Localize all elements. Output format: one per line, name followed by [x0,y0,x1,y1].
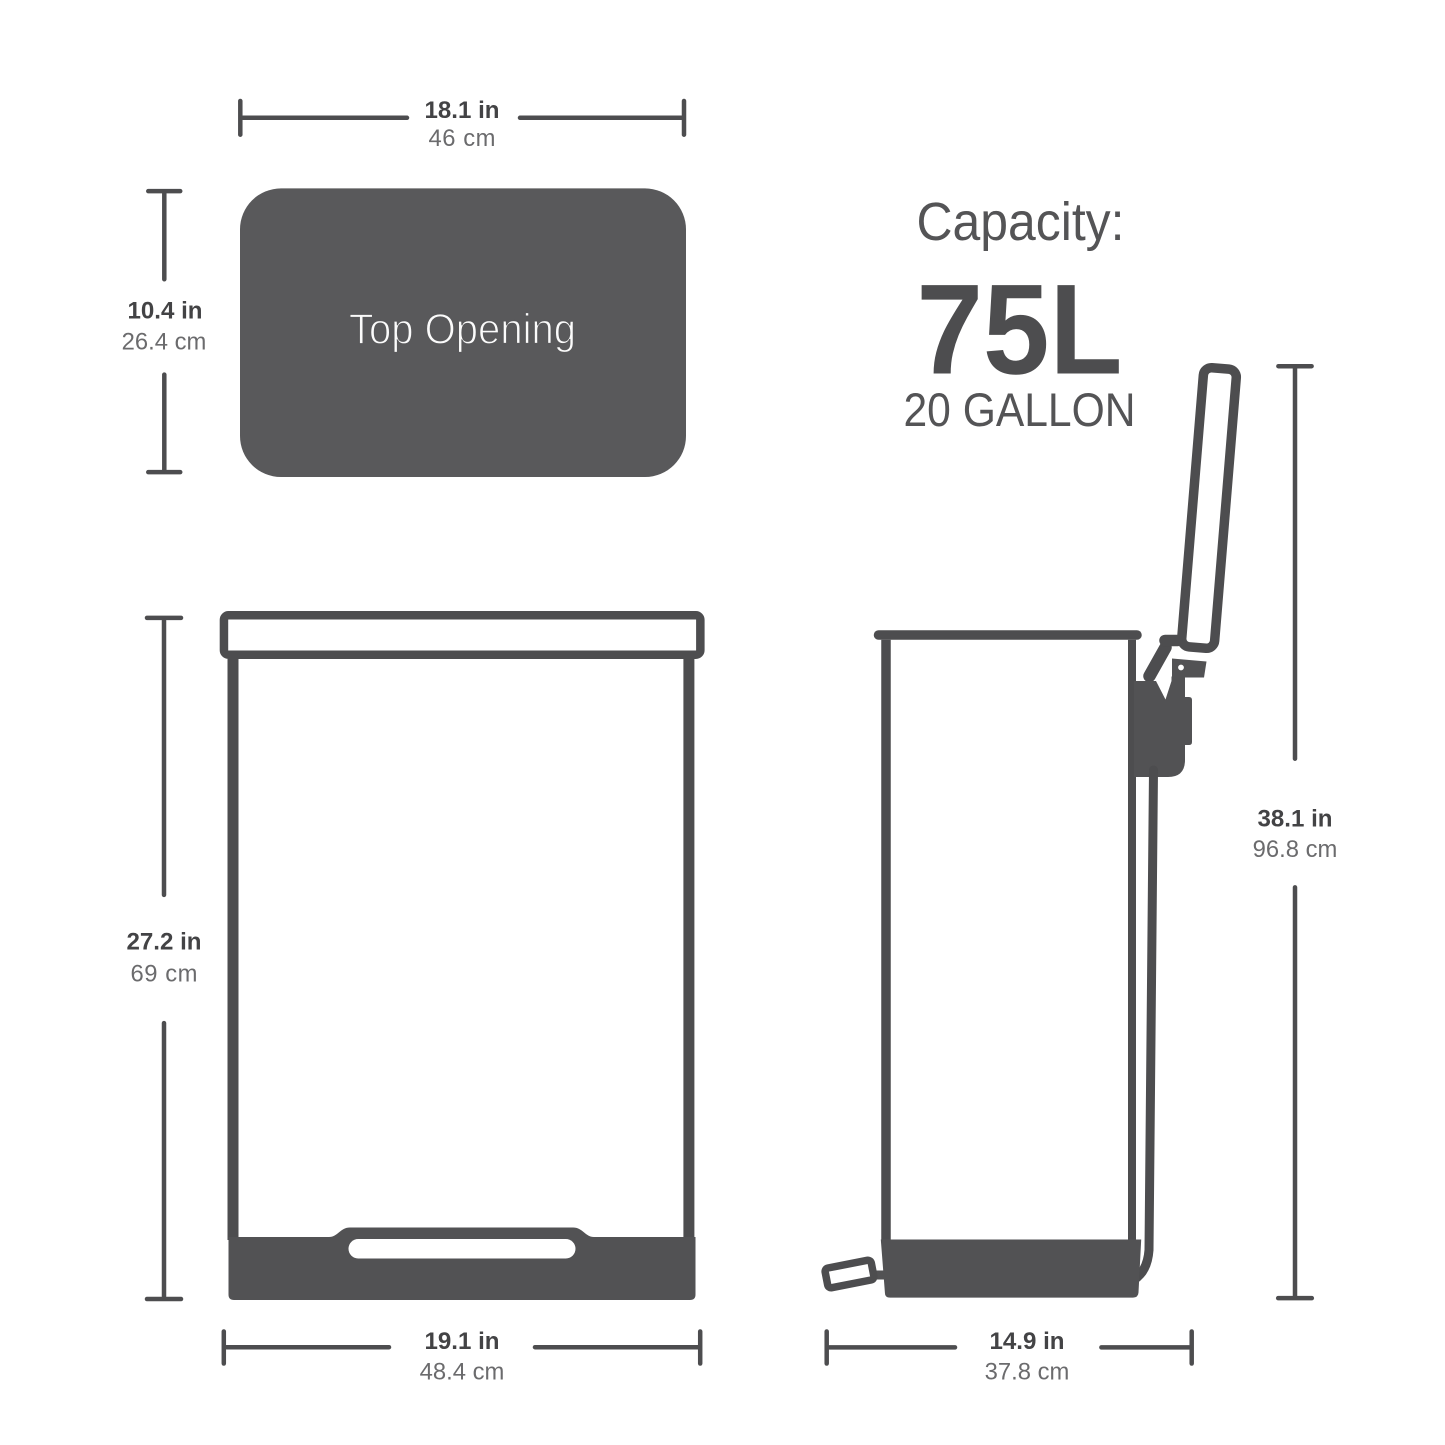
svg-text:19.1 in: 19.1 in [425,1328,500,1355]
svg-text:Top Opening: Top Opening [349,307,576,354]
svg-text:Capacity:: Capacity: [917,192,1125,252]
svg-text:27.2 in: 27.2 in [127,929,202,956]
svg-text:46 cm: 46 cm [429,125,496,152]
svg-text:38.1 in: 38.1 in [1258,806,1333,833]
svg-text:75L: 75L [917,259,1123,402]
svg-text:18.1 in: 18.1 in [425,97,500,124]
svg-text:26.4 cm: 26.4 cm [122,329,207,356]
svg-text:96.8 cm: 96.8 cm [1253,836,1338,863]
svg-text:10.4 in: 10.4 in [128,298,203,325]
svg-text:37.8 cm: 37.8 cm [985,1359,1070,1386]
svg-text:48.4 cm: 48.4 cm [420,1359,505,1386]
svg-text:20 GALLON: 20 GALLON [904,383,1136,436]
svg-text:14.9 in: 14.9 in [990,1328,1065,1355]
svg-text:69 cm: 69 cm [131,961,198,988]
